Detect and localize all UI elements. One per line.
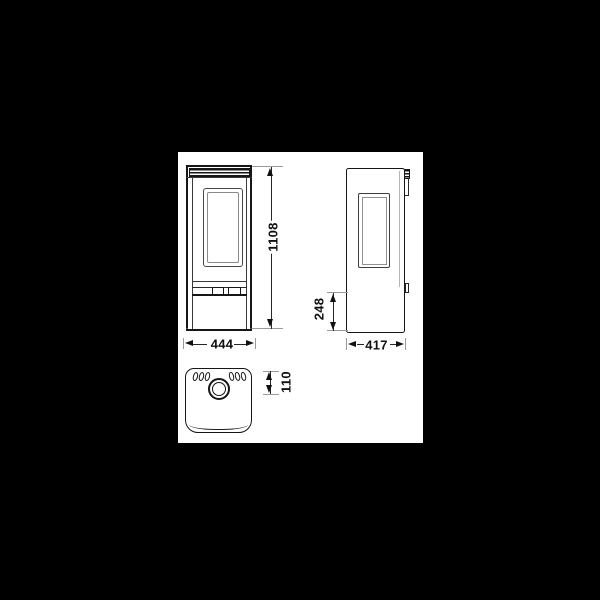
dim-flue-label: 110 bbox=[279, 369, 292, 395]
dim-flue-centre-offset: 110 bbox=[178, 152, 423, 443]
dim-flue-tick-bottom bbox=[263, 394, 279, 395]
black-letterbox-background: { "background": { "color": "#000000" }, … bbox=[0, 0, 600, 600]
dim-flue-arrow-down bbox=[266, 385, 272, 393]
dim-flue-arrow-up bbox=[266, 372, 272, 380]
drawing-sheet: 1108 444 248 417 bbox=[178, 152, 423, 443]
